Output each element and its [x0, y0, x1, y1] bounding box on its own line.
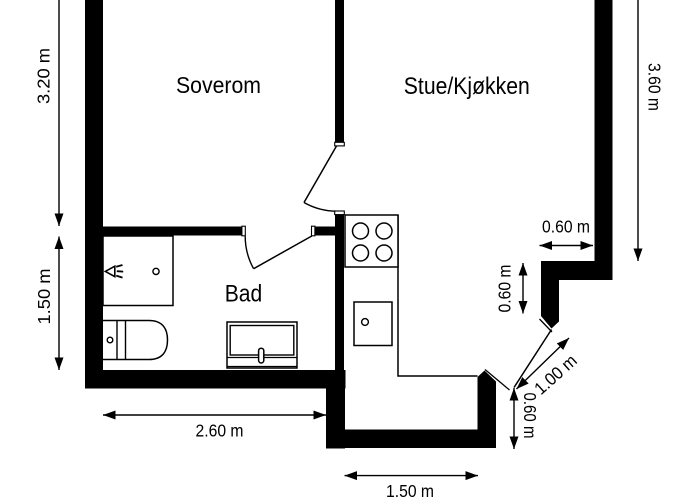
- svg-text:0.60 m: 0.60 m: [542, 217, 590, 237]
- svg-text:Bad: Bad: [225, 281, 263, 308]
- svg-text:Stue/Kjøkken: Stue/Kjøkken: [404, 73, 530, 100]
- svg-text:1.50 m: 1.50 m: [34, 269, 54, 325]
- svg-text:1.50 m: 1.50 m: [386, 481, 434, 500]
- svg-text:0.60 m: 0.60 m: [495, 265, 515, 313]
- svg-text:3.60 m: 3.60 m: [645, 63, 665, 111]
- svg-text:Soverom: Soverom: [176, 72, 261, 98]
- svg-text:2.60 m: 2.60 m: [196, 421, 244, 441]
- svg-text:3.20 m: 3.20 m: [34, 48, 54, 104]
- svg-text:0.60 m: 0.60 m: [520, 393, 540, 439]
